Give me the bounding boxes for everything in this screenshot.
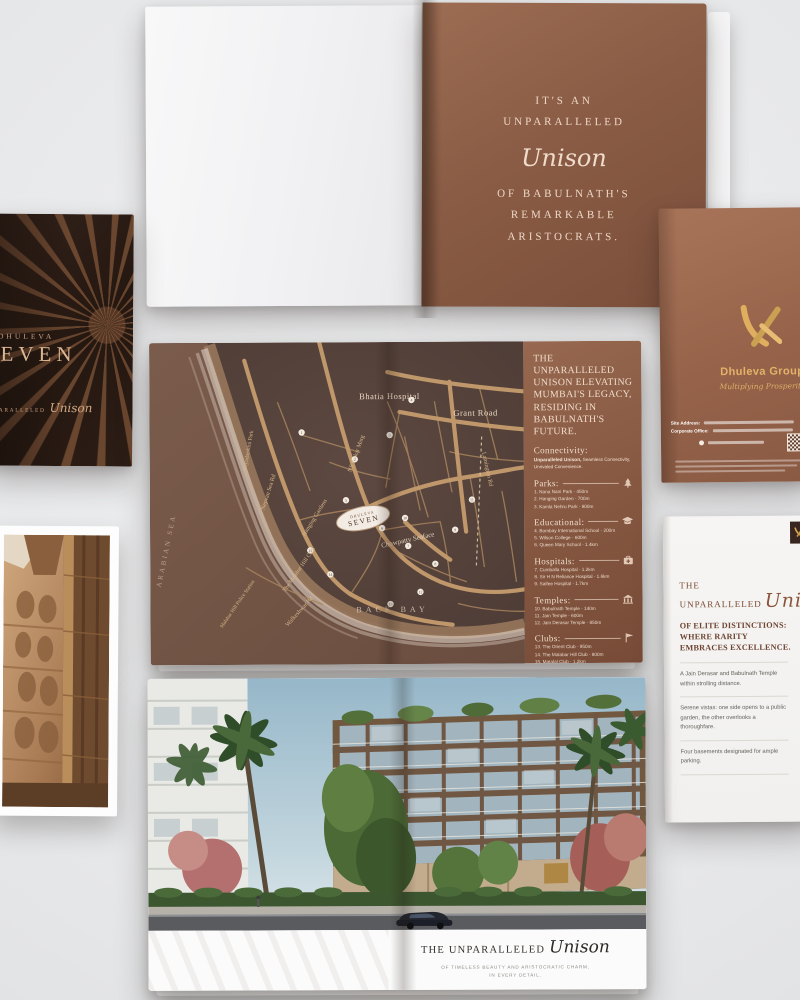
map-illustration: 1 2 3 4 5 6 7 8 9 10 11 12 13 14 [149, 341, 525, 665]
corporate-office-row: Corporate Office: [671, 427, 800, 434]
corporate-office-label: Corporate Office: [671, 428, 709, 433]
qr-code [787, 433, 800, 451]
map-label-grant-road: Grant Road [453, 407, 498, 417]
list-item: 15. Matalal Club - 1.2km [535, 658, 634, 664]
dhuleva-seven-mark [790, 522, 800, 544]
connectivity-section: Connectivity: Unparalleled Unison, Seaml… [534, 445, 633, 472]
elite-heading-unparalleled: UNPARALLELED [680, 599, 762, 610]
svg-text:5: 5 [345, 498, 347, 503]
elite-paragraph: A Jain Derasar and Babulnath Temple with… [680, 662, 788, 697]
rule [579, 560, 619, 561]
elite-subheading: OF ELITE DISTINCTIONS: WHERE RARITY EMBR… [680, 620, 798, 654]
top-open-spread: IT'S AN UNPARALLELED Unison OF BABULNATH… [140, 0, 730, 318]
connectivity-copy: Unparalleled Unison, Seamless Connectivi… [534, 457, 633, 472]
svg-text:8: 8 [434, 561, 436, 566]
footer-script-word: Unison [549, 937, 610, 957]
footer-heading: THE UNPARALLELED [421, 944, 545, 955]
spine-shadow [389, 678, 416, 990]
elite-paragraphs: A Jain Derasar and Babulnath Temple with… [680, 662, 789, 776]
intro-line: OF BABULNATH'S [422, 183, 706, 205]
site-address-label: Site Address: [671, 420, 701, 425]
cover-tagline: UNPARALLELEDUnison [0, 400, 92, 415]
temple-carving-photo [2, 535, 110, 808]
spine-shadow [412, 0, 438, 318]
brochure-mockup-board: IT'S AN UNPARALLELED Unison OF BABULNATH… [0, 0, 800, 1000]
fine-print-bar [675, 459, 800, 462]
temples-title: Temples: [534, 595, 570, 605]
fine-print-bar [675, 469, 785, 472]
list-item: 12. Jain Derasar Temple - 850m [535, 619, 634, 627]
building-render-spread: THE UNPARALLELEDUnison OF TIMELESS BEAUT… [147, 677, 646, 991]
location-map-spread: 1 2 3 4 5 6 7 8 9 10 11 12 13 14 [149, 341, 643, 666]
footer-subline: IN EVERY DETAIL. [400, 971, 630, 980]
connectivity-bold: Unparalleled Unison, [534, 458, 582, 463]
list-item: 9. Saifee Hospital - 1.7km [534, 580, 633, 588]
educational-section: Educational: 4. Bombay International Sch… [534, 517, 633, 549]
cover-tagline-script: Unison [50, 401, 93, 415]
medical-bag-icon [623, 556, 633, 565]
svg-text:10: 10 [403, 515, 407, 520]
cover-brand: DHULEVA [0, 332, 93, 342]
parks-section: Parks: 1. Nana Nani Park - 450m 2. Hangi… [534, 478, 633, 510]
cover-tagline-prefix: UNPARALLELED [0, 407, 46, 413]
unison-script-word: Unison [422, 143, 706, 172]
intro-line: IT'S AN [422, 91, 706, 113]
spine-shadow [375, 342, 403, 664]
list-item: 6. Queen Mary School - 1.4km [534, 541, 633, 549]
redacted-text-bar [713, 429, 793, 432]
svg-text:12: 12 [418, 589, 422, 594]
back-cover: Dhuleva Group Multiplying Prosperity Sit… [659, 207, 800, 483]
cover-title-block: DHULEVA SEVEN UNPARALLELEDUnison [0, 331, 93, 415]
cover-title: SEVEN [0, 341, 93, 367]
svg-text:1: 1 [301, 430, 303, 435]
temple-icon [622, 595, 633, 604]
top-spread-left-page-blank [145, 5, 423, 306]
flag-icon [625, 633, 634, 643]
globe-icon [699, 440, 704, 445]
svg-text:14: 14 [328, 572, 332, 577]
back-cover-tagline: Multiplying Prosperity [660, 381, 800, 392]
fine-print-bar [675, 464, 797, 467]
educational-title: Educational: [534, 517, 584, 527]
back-cover-brand: Dhuleva Group [660, 365, 800, 379]
list-item: 3. Kamla Nehru Park - 800m [534, 502, 633, 510]
hospitals-section: Hospitals: 7. Cumballa Hospital - 1.2km … [534, 556, 633, 588]
redacted-text-bar [704, 421, 794, 424]
parks-title: Parks: [534, 478, 559, 488]
rule [563, 482, 619, 483]
clubs-section: Clubs: 13. The Orient Club - 950m 14. Th… [535, 633, 634, 663]
redacted-text-bar [708, 441, 764, 444]
svg-text:9: 9 [454, 527, 456, 532]
svg-text:11: 11 [470, 497, 474, 502]
hospitals-title: Hospitals: [534, 556, 575, 566]
elite-heading: THE UNPARALLELEDUnison [679, 580, 799, 613]
dhuleva-monogram-icon [736, 304, 782, 350]
tree-icon [623, 478, 633, 488]
temples-section: Temples: 10. Babulnath Temple - 140m 11.… [534, 594, 633, 626]
elite-paragraph: Four basements designated for ample park… [680, 739, 788, 775]
rule [575, 599, 619, 600]
svg-text:7: 7 [407, 543, 409, 548]
footer-copy: THE UNPARALLELEDUnison OF TIMELESS BEAUT… [400, 937, 630, 979]
amenities-panel: THE UNPARALLELED UNISON ELEVATING MUMBAI… [523, 341, 643, 664]
clubs-title: Clubs: [535, 634, 561, 644]
website-row [699, 439, 800, 445]
graduation-cap-icon [622, 517, 633, 526]
site-address-row: Site Address: [671, 419, 800, 426]
rule [565, 638, 621, 639]
rule [588, 521, 618, 522]
elite-heading-script: Unison [765, 589, 800, 612]
front-cover: DHULEVA SEVEN UNPARALLELEDUnison [0, 213, 134, 466]
temple-photo-art [2, 535, 110, 808]
elite-paragraph: Serene vistas: one side opens to a publi… [680, 696, 788, 740]
temple-photo-card [0, 526, 119, 817]
babulnath-location-map: 1 2 3 4 5 6 7 8 9 10 11 12 13 14 [149, 341, 525, 665]
elite-distinctions-page: THE UNPARALLELEDUnison OF ELITE DISTINCT… [663, 515, 800, 822]
panel-headline: THE UNPARALLELED UNISON ELEVATING MUMBAI… [533, 353, 632, 439]
monogram-icon [794, 527, 800, 539]
connectivity-title: Connectivity: [534, 445, 588, 455]
intro-line: UNPARALLELED [422, 112, 706, 134]
